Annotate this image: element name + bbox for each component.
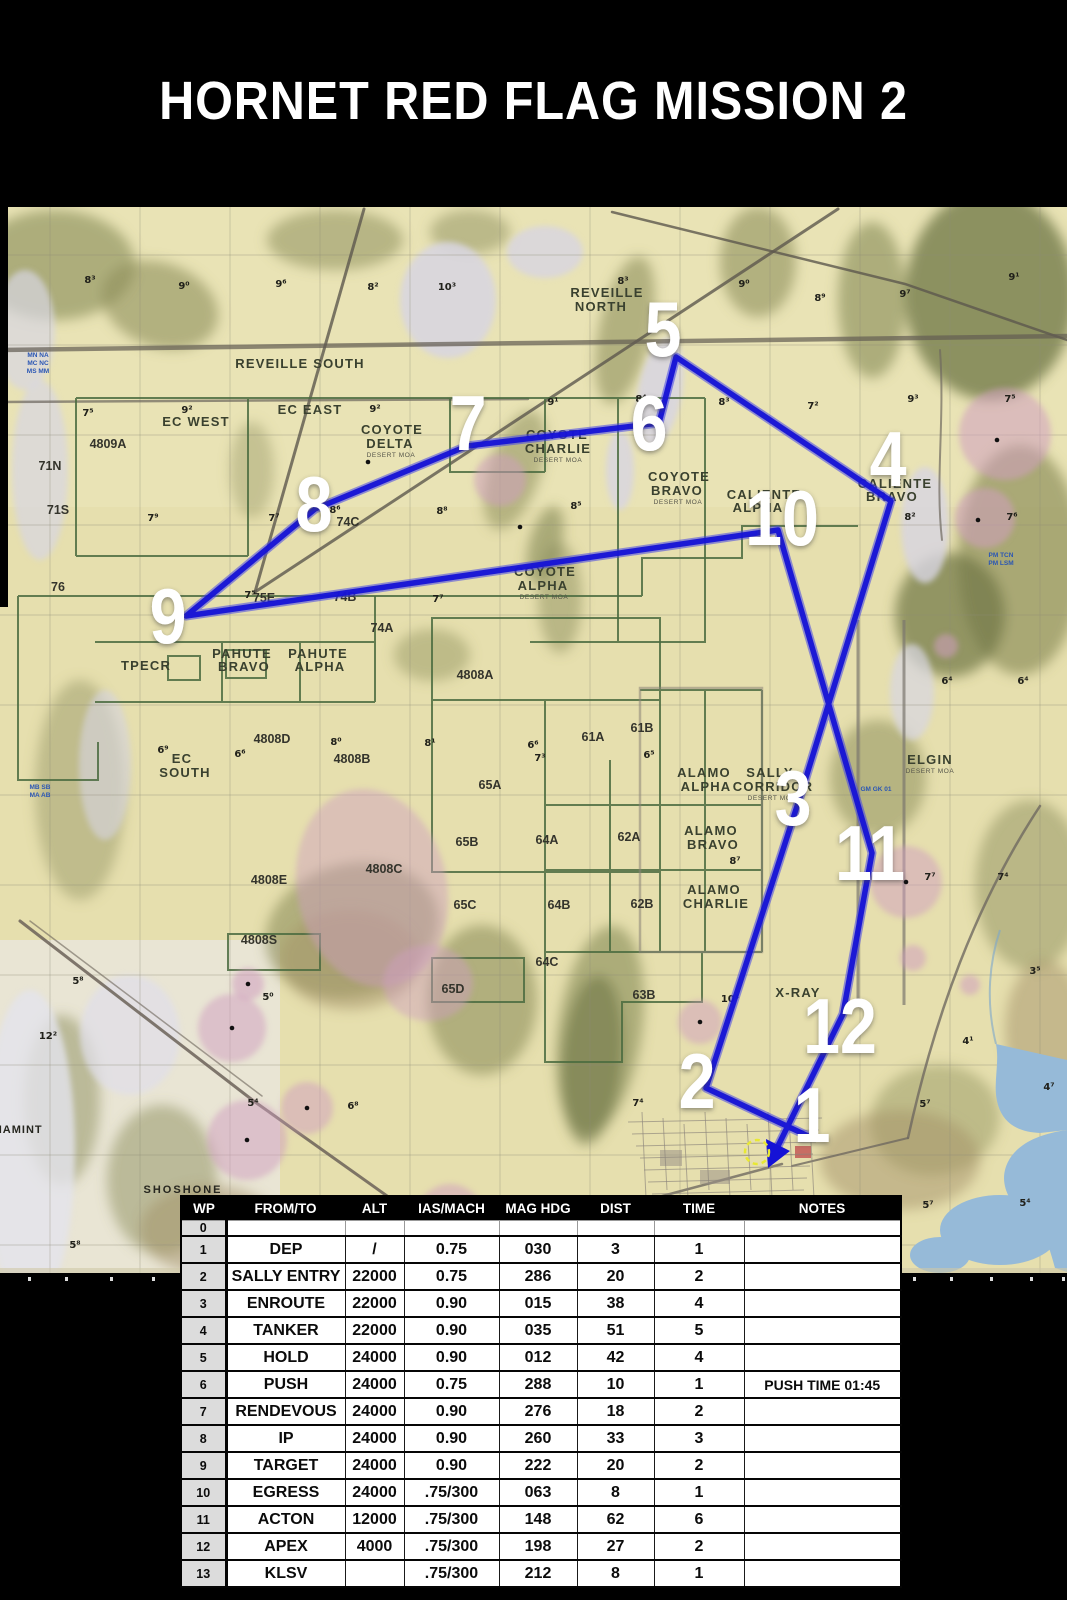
col-header-dist: DIST xyxy=(577,1196,654,1221)
map-label: 7⁴ xyxy=(632,1098,643,1109)
map-label: MC NC xyxy=(27,360,49,367)
cell-wp3-time: 4 xyxy=(654,1290,744,1317)
map-label: SOUTH xyxy=(159,765,211,780)
map-label: 7² xyxy=(807,401,818,412)
map-label: 5⁰ xyxy=(262,992,273,1003)
table-row-wp-5: 5HOLD240000.90012424 xyxy=(181,1344,901,1371)
map-label: 8³ xyxy=(617,276,628,287)
cell-wp1-wp: 1 xyxy=(181,1236,226,1263)
map-label: REVEILLE xyxy=(570,285,643,300)
cell-wp8-wp: 8 xyxy=(181,1425,226,1452)
cell-wp10-mag-hdg: 063 xyxy=(499,1479,577,1506)
cell-wp1-ias-mach: 0.75 xyxy=(404,1236,499,1263)
cell-wp8-dist: 33 xyxy=(577,1425,654,1452)
map-label: 4809A xyxy=(90,437,127,451)
cell-wp4-notes xyxy=(744,1317,901,1344)
waypoint-label-9: 9 xyxy=(150,573,187,660)
cell-wp4-alt: 22000 xyxy=(345,1317,404,1344)
map-label: MB SB xyxy=(30,784,51,791)
map-label: DESERT MOA xyxy=(367,452,416,459)
map-label: CHARLIE xyxy=(683,896,749,911)
table-row-wp-12: 12APEX4000.75/300198272 xyxy=(181,1533,901,1560)
waypoint-label-12: 12 xyxy=(803,983,877,1070)
cell-wp13-notes xyxy=(744,1560,901,1587)
map-label: 8³ xyxy=(718,397,729,408)
map-label: ALPHA xyxy=(295,659,346,674)
map-label: ALAMO xyxy=(687,882,741,897)
cell-wp10-wp: 10 xyxy=(181,1479,226,1506)
map-label: 6⁸ xyxy=(347,1101,358,1112)
map-label: 61A xyxy=(582,730,605,744)
cell-wp8-time: 3 xyxy=(654,1425,744,1452)
map-label: 8² xyxy=(367,282,378,293)
cell-wp11-time: 6 xyxy=(654,1506,744,1533)
cell-wp0-notes xyxy=(744,1221,901,1237)
cell-wp7-mag-hdg: 276 xyxy=(499,1398,577,1425)
map-label: 65B xyxy=(456,835,479,849)
table-row-wp-2: 2SALLY ENTRY220000.75286202 xyxy=(181,1263,901,1290)
map-label: 8³ xyxy=(84,275,95,286)
cell-wp0-ias-mach xyxy=(404,1221,499,1237)
map-label: 3⁵ xyxy=(1029,966,1040,977)
cell-wp12-from-to: APEX xyxy=(226,1533,345,1560)
cell-wp2-mag-hdg: 286 xyxy=(499,1263,577,1290)
cell-wp10-from-to: EGRESS xyxy=(226,1479,345,1506)
map-label: ELGIN xyxy=(907,752,953,767)
table-row-wp-8: 8IP240000.90260333 xyxy=(181,1425,901,1452)
cell-wp8-mag-hdg: 260 xyxy=(499,1425,577,1452)
cell-wp12-mag-hdg: 198 xyxy=(499,1533,577,1560)
cell-wp13-dist: 8 xyxy=(577,1560,654,1587)
map-label: 7⁵ xyxy=(244,590,255,601)
map-label: PANAMINT xyxy=(0,1124,43,1136)
cell-wp12-alt: 4000 xyxy=(345,1533,404,1560)
cell-wp1-alt: / xyxy=(345,1236,404,1263)
table-row-wp-9: 9TARGET240000.90222202 xyxy=(181,1452,901,1479)
map-label: 62A xyxy=(618,830,641,844)
cell-wp1-dist: 3 xyxy=(577,1236,654,1263)
map-label: 7⁶ xyxy=(1006,512,1017,523)
cell-wp12-notes xyxy=(744,1533,901,1560)
map-label: 9¹ xyxy=(547,397,558,408)
map-label: 6⁵ xyxy=(643,750,654,761)
map-label: ALAMO xyxy=(684,823,738,838)
cell-wp6-notes: PUSH TIME 01:45 xyxy=(744,1371,901,1398)
map-label: 5⁷ xyxy=(922,1200,933,1211)
cell-wp13-alt xyxy=(345,1560,404,1587)
cell-wp10-dist: 8 xyxy=(577,1479,654,1506)
waypoint-label-6: 6 xyxy=(631,380,668,467)
cell-wp13-mag-hdg: 212 xyxy=(499,1560,577,1587)
cell-wp8-notes xyxy=(744,1425,901,1452)
map-label: EC WEST xyxy=(162,414,230,429)
cell-wp12-ias-mach: .75/300 xyxy=(404,1533,499,1560)
map-label: 4808S xyxy=(241,933,277,947)
map-label: COYOTE xyxy=(648,469,710,484)
cell-wp4-ias-mach: 0.90 xyxy=(404,1317,499,1344)
table-row-wp-4: 4TANKER220000.90035515 xyxy=(181,1317,901,1344)
cell-wp5-from-to: HOLD xyxy=(226,1344,345,1371)
map-label: PM TCN xyxy=(989,552,1014,559)
map-label: MA AB xyxy=(30,792,51,799)
cell-wp12-dist: 27 xyxy=(577,1533,654,1560)
cell-wp9-wp: 9 xyxy=(181,1452,226,1479)
table-row-wp-0: 0 xyxy=(181,1221,901,1237)
map-label: 4808E xyxy=(251,873,287,887)
cell-wp4-mag-hdg: 035 xyxy=(499,1317,577,1344)
map-label: 4¹ xyxy=(962,1036,973,1047)
map-label: 7⁵ xyxy=(82,408,93,419)
map-torn-left-edge xyxy=(0,207,8,607)
map-label: TPECR xyxy=(121,658,171,673)
map-label: 7⁷ xyxy=(432,594,443,605)
map-label: 7³ xyxy=(534,753,545,764)
waypoint-label-8: 8 xyxy=(296,461,333,548)
cell-wp3-wp: 3 xyxy=(181,1290,226,1317)
col-header-ias-mach: IAS/MACH xyxy=(404,1196,499,1221)
cell-wp7-time: 2 xyxy=(654,1398,744,1425)
cell-wp9-mag-hdg: 222 xyxy=(499,1452,577,1479)
map-label: 8² xyxy=(904,512,915,523)
map-label: 9¹ xyxy=(1008,272,1019,283)
map-label: 8⁰ xyxy=(330,737,341,748)
map-label: 74A xyxy=(371,621,394,635)
cell-wp13-ias-mach: .75/300 xyxy=(404,1560,499,1587)
map-label: 6⁴ xyxy=(1017,676,1028,687)
cell-wp0-mag-hdg xyxy=(499,1221,577,1237)
map-label: 9⁰ xyxy=(738,279,749,290)
cell-wp2-alt: 22000 xyxy=(345,1263,404,1290)
map-label: GM GK 01 xyxy=(860,786,891,793)
cell-wp2-ias-mach: 0.75 xyxy=(404,1263,499,1290)
col-header-notes: NOTES xyxy=(744,1196,901,1221)
map-label: 64A xyxy=(536,833,559,847)
map-label: 8⁸ xyxy=(436,506,447,517)
cell-wp11-dist: 62 xyxy=(577,1506,654,1533)
cell-wp5-mag-hdg: 012 xyxy=(499,1344,577,1371)
cell-wp10-notes xyxy=(744,1479,901,1506)
map-label: 4808B xyxy=(334,752,371,766)
map-label: 5⁸ xyxy=(69,1240,80,1251)
map-label: 8⁵ xyxy=(570,501,581,512)
map-label: PM LSM xyxy=(988,560,1013,567)
cell-wp7-ias-mach: 0.90 xyxy=(404,1398,499,1425)
cell-wp12-time: 2 xyxy=(654,1533,744,1560)
cell-wp1-mag-hdg: 030 xyxy=(499,1236,577,1263)
map-label: 61B xyxy=(631,721,654,735)
cell-wp9-notes xyxy=(744,1452,901,1479)
cell-wp3-notes xyxy=(744,1290,901,1317)
cell-wp2-time: 2 xyxy=(654,1263,744,1290)
map-label: NORTH xyxy=(575,299,627,314)
cell-wp7-alt: 24000 xyxy=(345,1398,404,1425)
cell-wp6-ias-mach: 0.75 xyxy=(404,1371,499,1398)
mission-briefing-slide: { "title": "HORNET RED FLAG MISSION 2", … xyxy=(0,0,1067,1600)
mission-data-table: WP FROM/TO ALT IAS/MACH MAG HDG DIST TIM… xyxy=(180,1195,902,1588)
cell-wp6-from-to: PUSH xyxy=(226,1371,345,1398)
cell-wp0-dist xyxy=(577,1221,654,1237)
cell-wp10-time: 1 xyxy=(654,1479,744,1506)
map-label: DESERT MOA xyxy=(534,457,583,464)
map-label: DESERT MOA xyxy=(520,594,569,601)
map-label: 62B xyxy=(631,897,654,911)
cell-wp2-from-to: SALLY ENTRY xyxy=(226,1263,345,1290)
map-label: 65D xyxy=(442,982,465,996)
waypoint-label-10: 10 xyxy=(745,475,819,562)
waypoint-label-5: 5 xyxy=(645,286,682,373)
map-label: 76 xyxy=(51,580,65,594)
cell-wp5-time: 4 xyxy=(654,1344,744,1371)
map-label: 74C xyxy=(337,515,360,529)
map-label: ALPHA xyxy=(518,578,569,593)
waypoint-label-7: 7 xyxy=(450,380,487,467)
cell-wp4-wp: 4 xyxy=(181,1317,226,1344)
map-label: DESERT MOA xyxy=(654,499,703,506)
cell-wp0-alt xyxy=(345,1221,404,1237)
waypoint-label-3: 3 xyxy=(775,755,812,842)
cell-wp0-from-to xyxy=(226,1221,345,1237)
col-header-alt: ALT xyxy=(345,1196,404,1221)
map-label: 6⁴ xyxy=(941,676,952,687)
cell-wp3-dist: 38 xyxy=(577,1290,654,1317)
map-label: 6⁹ xyxy=(157,745,168,756)
cell-wp11-alt: 12000 xyxy=(345,1506,404,1533)
cell-wp13-wp: 13 xyxy=(181,1560,226,1587)
waypoint-label-4: 4 xyxy=(870,416,907,503)
table-row-wp-7: 7RENDEVOUS240000.90276182 xyxy=(181,1398,901,1425)
cell-wp8-from-to: IP xyxy=(226,1425,345,1452)
cell-wp7-from-to: RENDEVOUS xyxy=(226,1398,345,1425)
map-label: 7⁷ xyxy=(268,513,279,524)
cell-wp9-ias-mach: 0.90 xyxy=(404,1452,499,1479)
table-row-wp-1: 1DEP/0.7503031 xyxy=(181,1236,901,1263)
cell-wp0-time xyxy=(654,1221,744,1237)
cell-wp6-dist: 10 xyxy=(577,1371,654,1398)
table-row-wp-13: 13KLSV.75/30021281 xyxy=(181,1560,901,1587)
map-label: 71N xyxy=(39,459,62,473)
map-label: 65A xyxy=(479,778,502,792)
map-label: MS MM xyxy=(27,368,49,375)
page-title: HORNET RED FLAG MISSION 2 xyxy=(53,70,1013,132)
cell-wp3-mag-hdg: 015 xyxy=(499,1290,577,1317)
map-label: 4808A xyxy=(457,668,494,682)
map-label: 6⁶ xyxy=(234,749,245,760)
cell-wp7-dist: 18 xyxy=(577,1398,654,1425)
map-label: 4⁷ xyxy=(1043,1082,1054,1093)
col-header-from-to: FROM/TO xyxy=(226,1196,345,1221)
map-label: 5⁸ xyxy=(72,976,83,987)
map-label: CHARLIE xyxy=(525,441,591,456)
map-label: 9³ xyxy=(907,394,918,405)
map-label: 7⁵ xyxy=(1004,394,1015,405)
map-label: 9⁷ xyxy=(899,289,910,300)
cell-wp6-alt: 24000 xyxy=(345,1371,404,1398)
map-label: 6⁶ xyxy=(527,740,538,751)
cell-wp9-alt: 24000 xyxy=(345,1452,404,1479)
map-label: 7⁹ xyxy=(147,513,158,524)
table-row-wp-10: 10EGRESS24000.75/30006381 xyxy=(181,1479,901,1506)
cell-wp13-from-to: KLSV xyxy=(226,1560,345,1587)
map-label: 7⁷ xyxy=(924,872,935,883)
waypoint-label-11: 11 xyxy=(835,810,905,897)
cell-wp11-ias-mach: .75/300 xyxy=(404,1506,499,1533)
map-label: 10³ xyxy=(438,282,456,293)
map-label: 64B xyxy=(548,898,571,912)
map-label: MN NA xyxy=(27,352,49,359)
cell-wp1-notes xyxy=(744,1236,901,1263)
cell-wp7-notes xyxy=(744,1398,901,1425)
map-label: BRAVO xyxy=(651,483,703,498)
cell-wp11-mag-hdg: 148 xyxy=(499,1506,577,1533)
map-label: BRAVO xyxy=(218,659,270,674)
map-label: 8¹ xyxy=(424,738,435,749)
col-header-time: TIME xyxy=(654,1196,744,1221)
cell-wp6-wp: 6 xyxy=(181,1371,226,1398)
map-label: 4808D xyxy=(254,732,291,746)
map-label: 8⁹ xyxy=(814,293,825,304)
map-label: 12² xyxy=(39,1031,57,1042)
cell-wp8-alt: 24000 xyxy=(345,1425,404,1452)
cell-wp9-from-to: TARGET xyxy=(226,1452,345,1479)
cell-wp5-notes xyxy=(744,1344,901,1371)
cell-wp6-time: 1 xyxy=(654,1371,744,1398)
cell-wp3-alt: 22000 xyxy=(345,1290,404,1317)
map-label: 65C xyxy=(454,898,477,912)
cell-wp2-wp: 2 xyxy=(181,1263,226,1290)
waypoint-label-2: 2 xyxy=(679,1038,716,1125)
cell-wp10-alt: 24000 xyxy=(345,1479,404,1506)
cell-wp4-from-to: TANKER xyxy=(226,1317,345,1344)
cell-wp8-ias-mach: 0.90 xyxy=(404,1425,499,1452)
cell-wp1-from-to: DEP xyxy=(226,1236,345,1263)
cell-wp2-dist: 20 xyxy=(577,1263,654,1290)
map-label: 9² xyxy=(369,404,380,415)
map-label: REVEILLE SOUTH xyxy=(235,356,364,371)
cell-wp11-from-to: ACTON xyxy=(226,1506,345,1533)
cell-wp5-alt: 24000 xyxy=(345,1344,404,1371)
map-label: EC xyxy=(172,751,192,766)
map-label: 9⁶ xyxy=(275,279,286,290)
cell-wp6-mag-hdg: 288 xyxy=(499,1371,577,1398)
cell-wp7-wp: 7 xyxy=(181,1398,226,1425)
map-label: 71S xyxy=(47,503,69,517)
map-label: 5⁴ xyxy=(247,1098,258,1109)
cell-wp4-dist: 51 xyxy=(577,1317,654,1344)
map-canvas: REVEILLE SOUTHREVEILLENORTHEC WESTEC EAS… xyxy=(0,200,1067,1290)
map-label: ALAMO xyxy=(677,765,731,780)
table-row-wp-3: 3ENROUTE220000.90015384 xyxy=(181,1290,901,1317)
table-row-wp-11: 11ACTON12000.75/300148626 xyxy=(181,1506,901,1533)
cell-wp3-from-to: ENROUTE xyxy=(226,1290,345,1317)
map-label: DESERT MOA xyxy=(906,768,955,775)
table-header-row: WP FROM/TO ALT IAS/MACH MAG HDG DIST TIM… xyxy=(181,1196,901,1221)
waypoint-label-1: 1 xyxy=(794,1072,831,1159)
map-label: EC EAST xyxy=(278,402,343,417)
cell-wp13-time: 1 xyxy=(654,1560,744,1587)
cell-wp3-ias-mach: 0.90 xyxy=(404,1290,499,1317)
cell-wp9-dist: 20 xyxy=(577,1452,654,1479)
col-header-wp: WP xyxy=(181,1196,226,1221)
cell-wp5-dist: 42 xyxy=(577,1344,654,1371)
map-label: 4808C xyxy=(366,862,403,876)
cell-wp4-time: 5 xyxy=(654,1317,744,1344)
cell-wp1-time: 1 xyxy=(654,1236,744,1263)
map-label: 5⁴ xyxy=(1019,1198,1030,1209)
cell-wp0-wp: 0 xyxy=(181,1221,226,1237)
cell-wp9-time: 2 xyxy=(654,1452,744,1479)
map-label: BRAVO xyxy=(687,837,739,852)
map-label: COYOTE xyxy=(361,422,423,437)
mission-map: REVEILLE SOUTHREVEILLENORTHEC WESTEC EAS… xyxy=(0,200,1067,1290)
map-label: 9² xyxy=(181,405,192,416)
table-row-wp-6: 6PUSH240000.75288101PUSH TIME 01:45 xyxy=(181,1371,901,1398)
map-label: 5⁷ xyxy=(919,1099,930,1110)
map-label: 9⁰ xyxy=(178,281,189,292)
map-label: 63B xyxy=(633,988,656,1002)
map-label: DELTA xyxy=(366,436,413,451)
map-label: 64C xyxy=(536,955,559,969)
map-label: 7⁴ xyxy=(997,872,1008,883)
map-label: 8⁷ xyxy=(729,856,740,867)
cell-wp5-ias-mach: 0.90 xyxy=(404,1344,499,1371)
cell-wp5-wp: 5 xyxy=(181,1344,226,1371)
cell-wp11-wp: 11 xyxy=(181,1506,226,1533)
cell-wp10-ias-mach: .75/300 xyxy=(404,1479,499,1506)
map-label: ALPHA xyxy=(681,779,732,794)
cell-wp2-notes xyxy=(744,1263,901,1290)
col-header-mag-hdg: MAG HDG xyxy=(499,1196,577,1221)
cell-wp11-notes xyxy=(744,1506,901,1533)
cell-wp12-wp: 12 xyxy=(181,1533,226,1560)
